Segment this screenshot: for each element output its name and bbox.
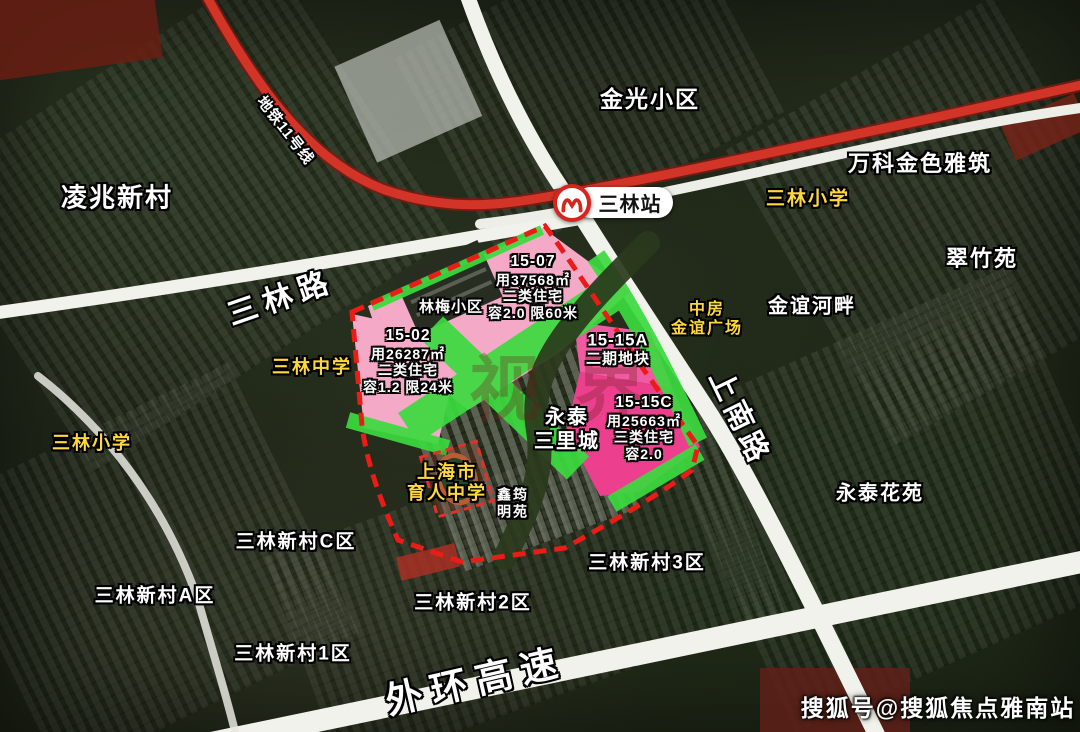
label-zhongfang-jinyi-plaza: 中房 金谊广场 xyxy=(671,301,743,339)
station-name: 三林站 xyxy=(599,188,662,217)
satellite-planning-map: 视界 凌兆新村 地铁11号线 金光小区 万科金色雅筑 三林小学 翠竹苑 三林路 … xyxy=(0,0,1080,732)
red-roof-block-center xyxy=(396,543,460,581)
parcel-label-15-15C: 15-15C 用25663㎡ 三类住宅 容2.0 xyxy=(607,394,681,462)
label-cuizhu-yuan: 翠竹苑 xyxy=(946,241,1018,273)
label-vanke-jinse-yazhu: 万科金色雅筑 xyxy=(848,146,992,178)
label-xincun-2: 三林新村2区 xyxy=(414,588,532,615)
label-xincun-1: 三林新村1区 xyxy=(234,639,352,666)
parcel-label-15-02: 15-02 用26287㎡ 二类住宅 容1.2 限24米 xyxy=(363,327,453,395)
label-sanlin-primary-west: 三林小学 xyxy=(52,429,132,455)
label-sanlin-primary-east: 三林小学 xyxy=(766,184,850,211)
parcel-label-15-15A: 15-15A 二期地块 xyxy=(586,330,650,368)
label-jinyi-hepan: 金谊河畔 xyxy=(768,290,856,319)
label-lingzhao-xincun: 凌兆新村 xyxy=(61,178,173,215)
red-roof-block-topleft xyxy=(0,0,163,81)
label-yuren-middle-school: 上海市 育人中学 xyxy=(407,462,487,504)
label-xinjun-mingyuan: 鑫筠 明苑 xyxy=(497,486,529,519)
shanghai-metro-logo-icon xyxy=(553,184,591,222)
label-linmei-xiaoqu: 林梅小区 xyxy=(419,296,483,317)
white-building-complex xyxy=(334,20,482,163)
label-xincun-3: 三林新村3区 xyxy=(588,548,706,575)
label-xincun-c: 三林新村C区 xyxy=(236,527,357,554)
label-yongtai-huayuan: 永泰花苑 xyxy=(836,477,924,506)
label-xincun-a: 三林新村A区 xyxy=(95,581,216,608)
parcel-label-15-07: 15-07 用37568㎡ 二类住宅 容2.0 限60米 xyxy=(488,253,578,321)
label-sanlin-middle-school: 三林中学 xyxy=(272,353,352,379)
label-jinguang-xiaoqu: 金光小区 xyxy=(600,80,700,114)
metro-station-badge: 三林站 xyxy=(553,184,661,222)
label-yongtai-sanlicheng: 永泰 三里城 xyxy=(534,406,600,453)
sohu-watermark: 搜狐号@搜狐焦点雅南站 xyxy=(801,689,1075,723)
